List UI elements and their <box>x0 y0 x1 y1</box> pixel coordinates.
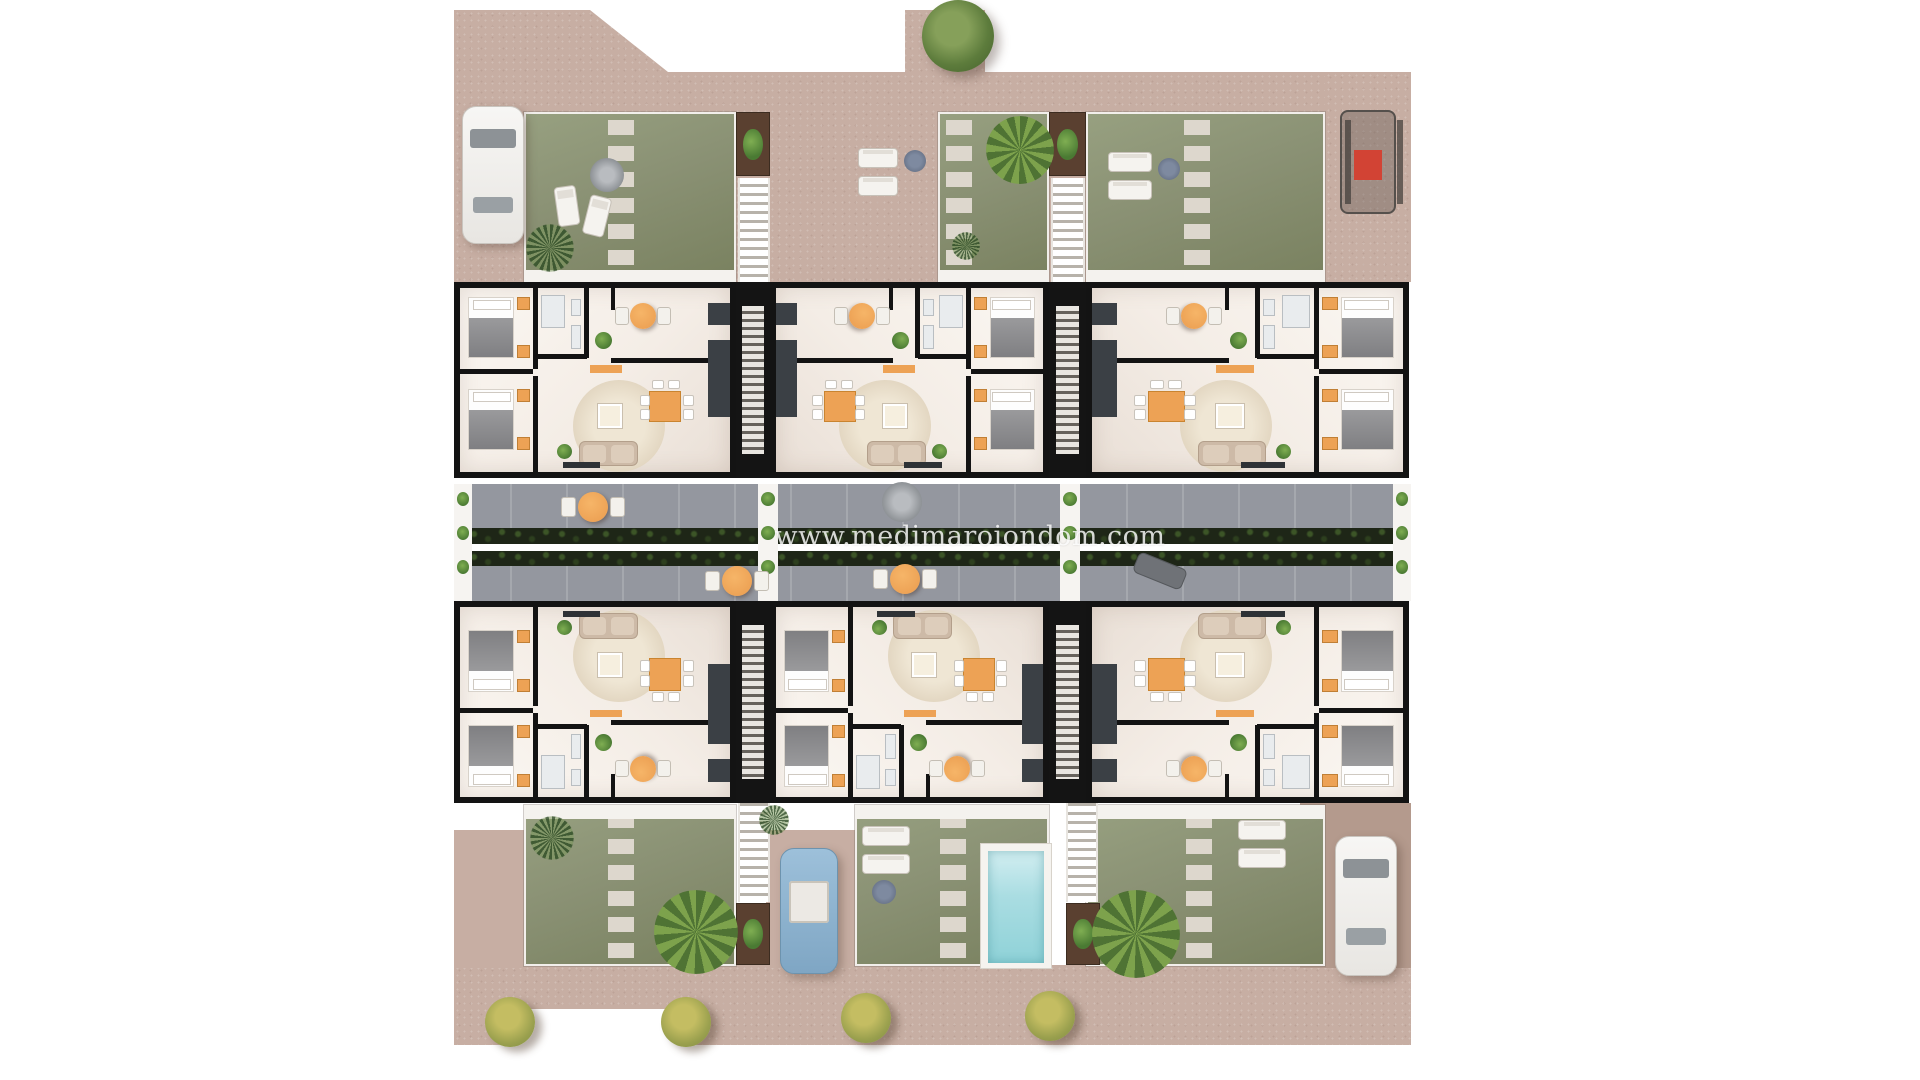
stairwell <box>1049 601 1086 803</box>
terrain-bottom <box>454 965 1411 1047</box>
sun-lounger <box>858 176 898 196</box>
stairwell <box>736 601 770 803</box>
nightstand <box>1322 345 1338 358</box>
driveway <box>454 830 524 968</box>
bed <box>990 297 1035 358</box>
interior-wall <box>971 369 1043 374</box>
houseplant <box>893 332 910 349</box>
dining-table <box>649 391 681 422</box>
bed <box>784 630 829 693</box>
shrub <box>530 816 574 860</box>
stepping-stones <box>1186 813 1212 958</box>
interior-wall <box>776 708 848 713</box>
nightstand <box>517 630 531 643</box>
interior-wall <box>1319 708 1403 713</box>
dining-chair <box>640 660 651 671</box>
stepping-stones <box>608 120 634 274</box>
houseplant <box>557 621 572 636</box>
parasol-table <box>882 482 922 522</box>
kitchen-counter <box>1092 664 1117 744</box>
dining-chair <box>652 693 664 703</box>
sun-lounger <box>862 826 910 846</box>
kitchen-appliance <box>1092 303 1117 325</box>
bed <box>468 630 514 693</box>
terrace-table <box>1181 756 1207 782</box>
interior-wall <box>966 376 971 472</box>
tv-unit <box>1241 462 1285 468</box>
side-table <box>1158 158 1180 180</box>
interior-wall <box>611 774 615 797</box>
nightstand <box>1322 679 1338 692</box>
nightstand <box>974 297 987 310</box>
blue-convertible-car <box>780 848 838 974</box>
toilet <box>571 769 582 786</box>
sun-lounger <box>858 148 898 168</box>
dining-chair <box>640 409 651 420</box>
bed <box>1341 389 1394 450</box>
kitchen-counter <box>708 664 730 744</box>
kitchen-counter <box>1092 340 1117 417</box>
sideboard <box>590 710 622 718</box>
dining-chair <box>812 409 823 420</box>
houseplant <box>910 734 927 751</box>
nightstand <box>1322 297 1338 310</box>
garden-patio <box>855 805 1049 819</box>
bathroom-vanity <box>571 325 582 349</box>
interior-wall <box>1314 376 1319 472</box>
kitchen-appliance <box>708 303 730 325</box>
stairwell <box>736 282 770 478</box>
dining-table <box>963 658 995 690</box>
interior-wall <box>915 288 920 358</box>
interior-wall <box>533 724 587 729</box>
nightstand <box>832 630 845 643</box>
dining-chair <box>1134 660 1146 671</box>
dining-chair <box>652 380 664 389</box>
dining-chair <box>1168 380 1182 389</box>
white-car <box>462 106 524 244</box>
shower <box>541 295 565 328</box>
coffee-table <box>883 404 907 428</box>
interior-wall <box>848 607 853 706</box>
coffee-table <box>1216 653 1244 678</box>
nightstand <box>1322 725 1338 738</box>
dining-table <box>649 658 681 690</box>
nightstand <box>974 345 987 358</box>
planter-box <box>736 903 770 965</box>
nightstand <box>517 725 531 738</box>
bush <box>485 997 535 1047</box>
dining-chair <box>954 660 965 671</box>
unit-bottom-left <box>454 601 736 803</box>
side-table <box>872 880 896 904</box>
stepping-stones <box>1184 120 1210 274</box>
interior-wall <box>611 288 615 310</box>
dining-chair <box>954 675 965 686</box>
dining-chair <box>1168 693 1182 703</box>
walkway-planter-column <box>1393 484 1411 601</box>
dining-chair <box>1134 395 1146 406</box>
terrace-table <box>849 303 875 329</box>
dining-chair <box>1184 675 1196 686</box>
outdoor-staircase <box>1051 178 1085 282</box>
unit-top-right <box>1086 282 1409 478</box>
interior-wall <box>460 708 533 713</box>
coffee-table <box>912 653 936 678</box>
houseplant <box>557 444 572 459</box>
houseplant <box>1276 444 1291 459</box>
sideboard <box>904 710 936 718</box>
tv-unit <box>1241 611 1285 618</box>
dining-chair <box>1134 675 1146 686</box>
interior-wall <box>584 725 589 797</box>
bush <box>1025 991 1075 1041</box>
palm-tree <box>986 116 1054 184</box>
dining-chair <box>1184 395 1196 406</box>
interior-wall <box>584 288 589 358</box>
garden-patio <box>1086 270 1325 282</box>
sideboard <box>1216 710 1253 718</box>
dining-chair <box>1184 660 1196 671</box>
dining-chair <box>855 395 866 406</box>
bed <box>1341 630 1394 693</box>
bathroom-vanity <box>571 734 582 759</box>
shower <box>541 755 565 789</box>
parasol-table <box>590 158 624 192</box>
nightstand <box>517 297 531 310</box>
kitchen-counter <box>708 340 730 417</box>
sideboard <box>590 365 622 372</box>
outdoor-table <box>722 566 752 596</box>
interior-wall <box>1319 369 1403 374</box>
planter-box <box>1049 112 1086 176</box>
unit-bottom-middle <box>770 601 1049 803</box>
sun-lounger <box>1238 820 1286 840</box>
bed <box>990 389 1035 450</box>
interior-wall <box>533 354 587 359</box>
dining-chair <box>1134 409 1146 420</box>
nightstand <box>1322 774 1338 787</box>
dining-chair <box>640 395 651 406</box>
swimming-pool <box>988 851 1044 963</box>
bush <box>661 997 711 1047</box>
stepping-stones <box>940 813 966 958</box>
buggy-vehicle <box>1340 110 1396 214</box>
nightstand <box>974 389 987 402</box>
sun-lounger <box>1108 152 1152 172</box>
interior-wall <box>918 354 971 359</box>
toilet <box>885 769 896 786</box>
bathroom-vanity <box>1263 325 1275 349</box>
palm-tree <box>1092 890 1180 978</box>
bed <box>1341 725 1394 788</box>
outdoor-staircase <box>1066 788 1098 902</box>
houseplant <box>595 734 612 751</box>
shrub <box>952 232 980 260</box>
interior-wall <box>899 725 904 797</box>
stepping-stones <box>608 813 634 958</box>
dining-table <box>1148 658 1185 690</box>
dining-chair <box>982 693 994 703</box>
dining-chair <box>683 395 694 406</box>
nightstand <box>832 725 845 738</box>
hedge-row <box>466 551 1399 566</box>
kitchen-appliance <box>708 759 730 782</box>
interior-wall <box>926 774 930 797</box>
kitchen-appliance <box>776 303 797 325</box>
interior-wall <box>533 607 538 706</box>
dining-chair <box>812 395 823 406</box>
palm-tree <box>654 890 738 974</box>
interior-wall <box>1314 607 1319 706</box>
houseplant <box>1231 734 1248 751</box>
bed <box>784 725 829 788</box>
outdoor-staircase <box>738 178 770 282</box>
interior-wall <box>460 369 533 374</box>
interior-wall <box>1257 724 1319 729</box>
unit-top-middle <box>770 282 1049 478</box>
dining-chair <box>841 380 853 389</box>
walkway-planter-column <box>454 484 472 601</box>
dining-chair <box>1150 693 1164 703</box>
dining-chair <box>855 409 866 420</box>
toilet <box>1263 299 1275 316</box>
dining-chair <box>1150 380 1164 389</box>
shower <box>1282 295 1310 328</box>
unit-top-left <box>454 282 736 478</box>
bed <box>468 389 514 450</box>
dining-chair <box>966 693 978 703</box>
bed <box>468 297 514 358</box>
dining-chair <box>640 675 651 686</box>
kitchen-counter <box>1022 664 1043 744</box>
shower <box>939 295 963 328</box>
dining-chair <box>683 409 694 420</box>
interior-wall <box>1255 725 1260 797</box>
terrace-table <box>944 756 970 782</box>
nightstand <box>832 679 845 692</box>
dining-chair <box>668 380 680 389</box>
houseplant <box>595 332 612 349</box>
houseplant <box>1231 332 1248 349</box>
nightstand <box>1322 630 1338 643</box>
shower <box>1282 755 1310 789</box>
toilet <box>923 299 934 316</box>
interior-wall <box>1255 288 1260 358</box>
houseplant <box>932 444 947 459</box>
outdoor-staircase <box>738 788 770 902</box>
kitchen-counter <box>776 340 797 417</box>
bathroom-vanity <box>1263 734 1275 759</box>
stairwell <box>1049 282 1086 478</box>
terrace-table <box>630 756 656 782</box>
interior-wall <box>1257 354 1319 359</box>
sideboard <box>883 365 915 372</box>
dining-chair <box>1184 409 1196 420</box>
dining-chair <box>683 660 694 671</box>
garden-patio <box>938 270 1049 282</box>
dining-chair <box>668 693 680 703</box>
dining-chair <box>825 380 837 389</box>
shower <box>856 755 880 789</box>
tv-unit <box>563 462 601 468</box>
nightstand <box>517 679 531 692</box>
outdoor-table <box>578 492 608 522</box>
interior-wall <box>1225 774 1229 797</box>
nightstand <box>517 774 531 787</box>
bathroom-vanity <box>923 325 934 349</box>
floorplan-render: www.medimaroiondom.com <box>0 0 1920 1080</box>
coffee-table <box>598 653 622 678</box>
tv-unit <box>904 462 941 468</box>
nightstand <box>974 437 987 450</box>
dining-chair <box>996 675 1007 686</box>
nightstand <box>832 774 845 787</box>
sun-lounger <box>862 854 910 874</box>
planter-box <box>736 112 770 176</box>
nightstand <box>517 389 531 402</box>
coffee-table <box>1216 404 1244 428</box>
kitchen-appliance <box>1022 759 1043 782</box>
garden-patio <box>524 270 736 282</box>
outdoor-table <box>890 564 920 594</box>
nightstand <box>517 345 531 358</box>
unit-bottom-right <box>1086 601 1409 803</box>
watermark: www.medimaroiondom.com <box>774 521 1165 552</box>
interior-wall <box>889 288 893 310</box>
shrub <box>759 805 789 835</box>
dining-table <box>824 391 856 422</box>
sun-lounger <box>1238 848 1286 868</box>
toilet <box>1263 769 1275 786</box>
sideboard <box>1216 365 1253 372</box>
nightstand <box>517 437 531 450</box>
side-table <box>904 150 926 172</box>
toilet <box>571 299 582 316</box>
dining-table <box>1148 391 1185 422</box>
bush <box>841 993 891 1043</box>
coffee-table <box>598 404 622 428</box>
nightstand <box>1322 389 1338 402</box>
tv-unit <box>877 611 914 618</box>
tv-unit <box>563 611 601 618</box>
houseplant <box>1276 621 1291 636</box>
garden-patio <box>1086 805 1325 819</box>
interior-wall <box>848 724 901 729</box>
bed <box>1341 297 1394 358</box>
shrub <box>526 224 574 272</box>
white-car <box>1335 836 1397 976</box>
interior-wall <box>1225 288 1229 310</box>
bathroom-vanity <box>885 734 896 759</box>
bed <box>468 725 514 788</box>
sun-lounger <box>1108 180 1152 200</box>
terrace-table <box>1181 303 1207 329</box>
dining-chair <box>996 660 1007 671</box>
kitchen-appliance <box>1092 759 1117 782</box>
nightstand <box>1322 437 1338 450</box>
tree <box>922 0 994 72</box>
dining-chair <box>683 675 694 686</box>
interior-wall <box>533 376 538 472</box>
houseplant <box>872 621 887 636</box>
terrace-table <box>630 303 656 329</box>
